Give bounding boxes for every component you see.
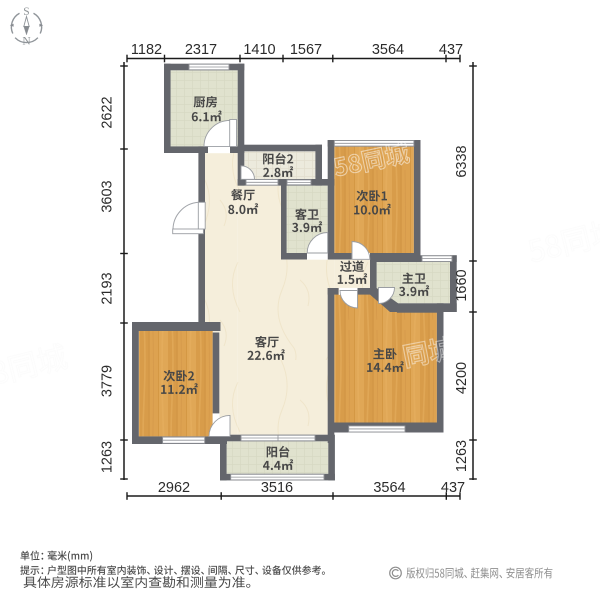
svg-text:1660: 1660: [454, 269, 470, 301]
svg-text:2962: 2962: [158, 480, 190, 496]
svg-text:3516: 3516: [261, 480, 293, 496]
svg-text:2317: 2317: [185, 42, 217, 58]
svg-text:4200: 4200: [454, 362, 470, 394]
svg-text:2193: 2193: [100, 272, 116, 304]
svg-text:437: 437: [441, 480, 465, 496]
svg-text:1410: 1410: [243, 42, 275, 58]
svg-text:3564: 3564: [372, 42, 404, 58]
svg-text:3564: 3564: [373, 480, 405, 496]
svg-text:3779: 3779: [100, 365, 116, 397]
svg-text:6338: 6338: [454, 145, 470, 177]
svg-text:1182: 1182: [131, 42, 162, 58]
svg-text:1263: 1263: [454, 440, 470, 472]
svg-text:1263: 1263: [100, 441, 116, 473]
svg-text:S: S: [23, 6, 29, 18]
svg-text:2622: 2622: [100, 96, 116, 128]
svg-text:437: 437: [439, 42, 463, 58]
svg-text:N: N: [22, 36, 31, 48]
svg-text:1567: 1567: [290, 42, 322, 58]
svg-text:3603: 3603: [100, 180, 116, 212]
